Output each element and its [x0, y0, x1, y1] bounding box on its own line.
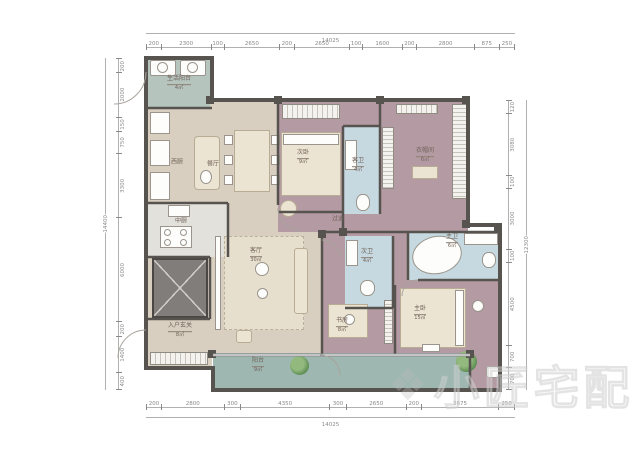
room-label-west-kitchen: 西厨 — [171, 160, 183, 167]
dining-chair — [271, 135, 280, 145]
bedside-rug — [280, 200, 297, 217]
dim-segment: 700 — [509, 368, 518, 389]
dim-segment: 200 — [407, 402, 421, 408]
wardrobe-second-bedroom — [282, 104, 340, 119]
dim-segment: 100 — [212, 42, 224, 48]
living-rug — [224, 236, 304, 330]
cloakroom-shelf — [396, 104, 438, 114]
room-area: 9㎡ — [252, 366, 264, 374]
room-label-cloakroom: 衣帽间6㎡ — [416, 148, 434, 164]
washer-drum-icon — [157, 62, 168, 73]
burner-icon — [164, 239, 171, 246]
armchair — [236, 330, 252, 343]
floorplan-canvas: 14025 2002300100265020026501001600200280… — [0, 0, 640, 452]
laundry-basin-icon — [187, 62, 198, 73]
cloakroom-wardrobe-left — [382, 127, 394, 189]
room-name: 次卫 — [361, 248, 373, 255]
island-sink-icon — [200, 170, 212, 184]
dim-segment: 1600 — [363, 42, 401, 48]
tv-cabinet — [215, 236, 221, 330]
room-label-guest-bath: 客卫4㎡ — [352, 158, 364, 174]
structural-column — [208, 350, 216, 358]
cloakroom-wardrobe-right — [452, 104, 467, 199]
fridge-icon — [150, 112, 170, 134]
room-name: 书房 — [336, 317, 348, 324]
room-name: 中厨 — [175, 218, 187, 225]
cloakroom-table — [412, 166, 438, 179]
dim-segment: 2300 — [162, 42, 211, 48]
room-name: 西厨 — [171, 159, 183, 166]
dim-segment: 200 — [147, 402, 161, 408]
room-label-foyer: 入户玄关8㎡ — [168, 323, 192, 339]
dim-left-segments: 2002000150750330060002001400400 — [118, 58, 128, 390]
dining-chair — [224, 175, 233, 185]
dim-segment: 120 — [509, 101, 518, 113]
room-label-balcony: 阳台9㎡ — [252, 358, 264, 374]
dim-segment: 250 — [500, 42, 514, 48]
dim-segment: 2800 — [162, 402, 224, 408]
dim-left-overall-line: 14400 — [101, 58, 111, 390]
room-name: 主卫 — [446, 233, 458, 240]
room-area: 15㎡ — [414, 314, 426, 322]
room-label-master-bath: 主卫6㎡ — [446, 234, 458, 250]
room-label-service-balcony: 生活阳台4㎡ — [167, 76, 191, 92]
structural-column — [318, 230, 326, 238]
room-label-secondary-bedroom: 次卧9㎡ — [297, 150, 309, 166]
room-area: 6㎡ — [416, 156, 434, 164]
structural-column — [376, 96, 384, 104]
room-label-second-bath: 次卫4㎡ — [361, 249, 373, 265]
dining-table — [234, 130, 270, 192]
plant-icon — [290, 356, 309, 375]
dim-bottom-overall-line: 14025 — [146, 410, 515, 418]
dim-segment: 250 — [499, 402, 514, 408]
dim-segment: 875 — [475, 42, 499, 48]
dim-tick — [514, 44, 515, 50]
dim-bottom-segments: 2002800300435030026502003675250 — [146, 398, 515, 408]
dim-segment: 3675 — [422, 402, 499, 408]
dim-segment: 4500 — [509, 263, 518, 345]
dim-segment: 200 — [147, 42, 161, 48]
dim-top-segments: 2002300100265020026501001600200280087525… — [146, 38, 515, 48]
room-area: 4㎡ — [167, 84, 191, 92]
second-bath-vanity — [346, 240, 358, 266]
burner-icon — [164, 229, 171, 236]
dim-segment: 2650 — [295, 42, 349, 48]
study-cabinet — [384, 300, 393, 344]
room-name: 餐厅 — [207, 161, 219, 168]
room-area: 8㎡ — [168, 331, 192, 339]
dim-segment: 3000 — [509, 189, 518, 248]
guest-bath-toilet-icon — [356, 194, 370, 211]
dining-chair — [271, 175, 280, 185]
room-name: 过道 — [332, 216, 344, 223]
master-bath-vanity — [464, 233, 498, 245]
dim-right-segments: 120308010030001004500700700 — [508, 100, 518, 390]
dim-bottom-overall: 14025 — [320, 422, 342, 428]
dim-segment: 400 — [119, 373, 128, 389]
room-label-study: 书房8㎡ — [336, 318, 348, 334]
room-name: 次卧 — [297, 149, 309, 156]
dim-segment: 200 — [280, 42, 294, 48]
dim-segment: 750 — [119, 132, 128, 154]
pillows-icon — [455, 290, 464, 346]
dim-right-overall-line: 12300 — [522, 100, 532, 390]
room-area: 30㎡ — [250, 256, 262, 264]
dim-segment: 150 — [119, 118, 128, 131]
room-label-mid-kitchen: 中厨 — [175, 219, 187, 226]
structural-column — [466, 350, 474, 358]
burner-icon — [180, 229, 187, 236]
dim-right-overall: 12300 — [524, 236, 530, 254]
dim-top-overall-line: 14025 — [146, 26, 515, 34]
dim-segment: 3080 — [509, 114, 518, 175]
dining-chair — [271, 155, 280, 165]
structural-column — [274, 96, 282, 104]
room-area: 4㎡ — [352, 166, 364, 174]
kitchen-sink-icon — [168, 205, 190, 217]
coffee-table — [255, 262, 269, 276]
room-area: 6㎡ — [446, 242, 458, 250]
room-label-dining: 餐厅 — [207, 162, 219, 169]
dim-segment: 200 — [403, 42, 417, 48]
stool-icon — [486, 366, 499, 378]
room-name: 客卫 — [352, 157, 364, 164]
dim-segment: 3300 — [119, 154, 128, 217]
dim-segment: 300 — [225, 402, 241, 408]
room-name: 衣帽间 — [416, 147, 434, 154]
dim-segment: 6000 — [119, 218, 128, 321]
dim-segment: 100 — [509, 176, 518, 188]
room-name: 生活阳台 — [167, 75, 191, 82]
dim-segment: 300 — [330, 402, 346, 408]
structural-column — [494, 225, 502, 233]
room-name: 阳台 — [252, 357, 264, 364]
dim-segment: 2650 — [225, 42, 279, 48]
room-area: 4㎡ — [361, 257, 373, 265]
dining-chair — [224, 135, 233, 145]
dim-segment: 4350 — [241, 402, 329, 408]
room-area: 9㎡ — [297, 158, 309, 166]
structural-column — [462, 220, 470, 228]
elevator-shaft — [152, 258, 208, 318]
room-name: 主卧 — [414, 305, 426, 312]
dim-left-overall: 14400 — [103, 215, 109, 233]
dim-segment: 700 — [509, 346, 518, 367]
bench-icon — [422, 344, 440, 352]
nightstand-icon — [472, 300, 484, 312]
tall-cabinet-icon — [150, 140, 170, 166]
pillows-icon — [283, 134, 339, 145]
structural-column — [339, 228, 347, 236]
shoe-cabinet — [150, 352, 208, 365]
room-label-living: 客厅30㎡ — [250, 248, 262, 264]
dim-tick — [506, 389, 512, 390]
burner-icon — [180, 239, 187, 246]
room-label-master-bedroom: 主卧15㎡ — [414, 306, 426, 322]
dim-segment: 200 — [119, 59, 128, 72]
oven-cabinet-icon — [150, 172, 170, 200]
dim-segment: 100 — [350, 42, 362, 48]
room-name: 客厅 — [250, 247, 262, 254]
dining-chair — [224, 155, 233, 165]
master-bath-toilet-icon — [482, 252, 496, 268]
room-area: 8㎡ — [336, 326, 348, 334]
side-table — [257, 288, 268, 299]
dim-segment: 1400 — [119, 337, 128, 372]
dim-segment: 2800 — [417, 42, 474, 48]
room-label-corridor: 过道 — [332, 217, 344, 224]
second-bath-toilet-icon — [360, 280, 375, 296]
dim-segment: 2000 — [119, 73, 128, 117]
sofa — [294, 248, 308, 314]
room-name: 入户玄关 — [168, 322, 192, 329]
structural-column — [462, 96, 470, 104]
dim-segment: 2650 — [347, 402, 406, 408]
dim-segment: 100 — [509, 250, 518, 262]
structural-column — [206, 96, 214, 104]
dim-segment: 200 — [119, 322, 128, 335]
